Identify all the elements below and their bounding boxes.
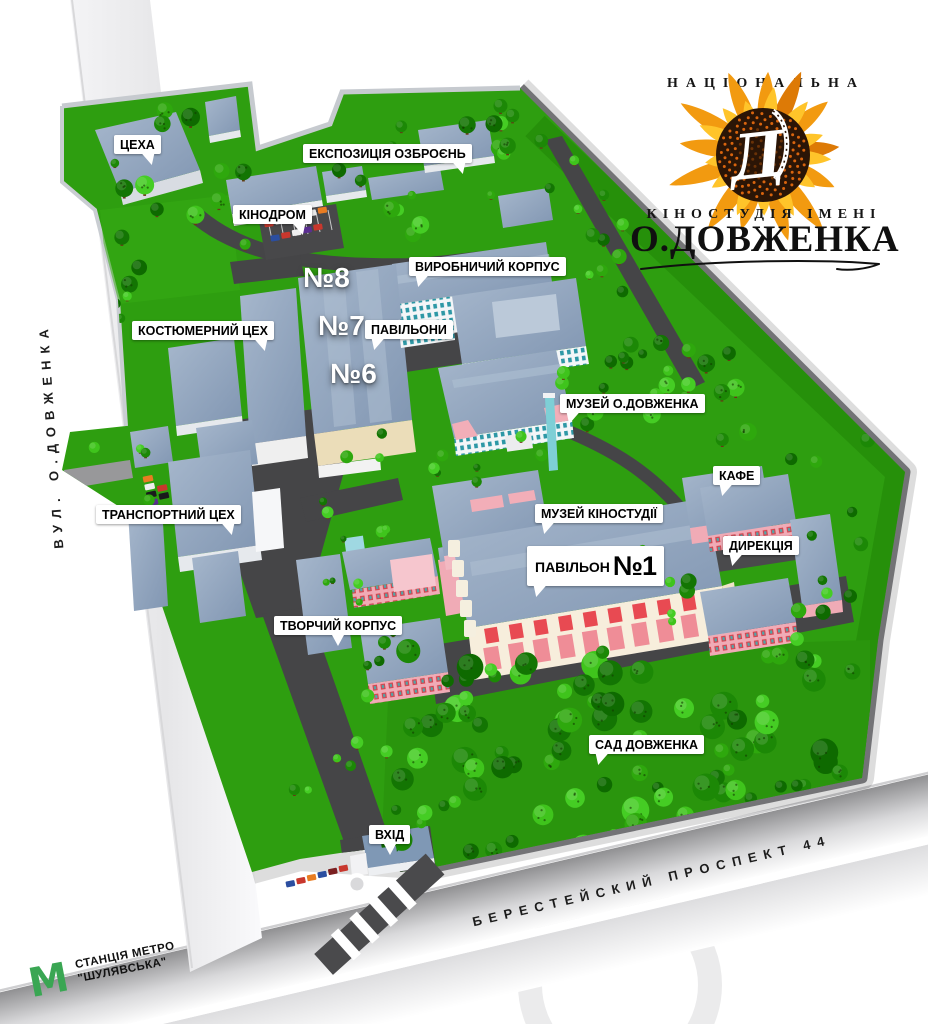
- label-vkhid: ВХІД: [369, 825, 410, 844]
- label-muzei-dovzhenka: МУЗЕЙ О.ДОВЖЕНКА: [560, 394, 705, 413]
- label-pavilion-1: ПАВІЛЬОН№1: [527, 546, 664, 586]
- label-pavilion-8: №8: [303, 262, 350, 294]
- label-pavilion-6: №6: [330, 358, 377, 390]
- svg-text:Д: Д: [723, 117, 790, 196]
- logo-name-line: О.ДОВЖЕНКА: [630, 221, 890, 258]
- label-sad-dovzhenka: САД ДОВЖЕНКА: [589, 735, 704, 754]
- label-kinodrom: КІНОДРОМ: [233, 205, 312, 224]
- label-dyrektsiia: ДИРЕКЦІЯ: [723, 536, 799, 555]
- label-transportnyi: ТРАНСПОРТНИЙ ЦЕХ: [96, 505, 241, 524]
- logo-monogram: Д: [723, 111, 790, 196]
- dovzhenko-film-studio-map: ЦЕХА ЕКСПОЗИЦІЯ ОЗБРОЄНЬ КІНОДРОМ ВИРОБН…: [0, 0, 928, 1024]
- logo-swash: [635, 257, 885, 273]
- studio-logo: НАЦІОНАЛЬНА Д КІНОСТУДІЯ ІМЕНІ О.ДОВЖЕНК…: [630, 58, 890, 273]
- label-vyrobnychyi: ВИРОБНИЧИЙ КОРПУС: [409, 257, 566, 276]
- label-pavilony: ПАВІЛЬОНИ: [365, 320, 453, 339]
- label-kafe: КАФЕ: [713, 466, 760, 485]
- label-expo-ozbroen: ЕКСПОЗИЦІЯ ОЗБРОЄНЬ: [303, 144, 472, 163]
- label-tsekha: ЦЕХА: [114, 135, 161, 154]
- label-tvorchyi: ТВОРЧИЙ КОРПУС: [274, 616, 402, 635]
- label-muzei-kinostudii: МУЗЕЙ КІНОСТУДІЇ: [535, 504, 663, 523]
- metro-m-logo: М: [22, 954, 75, 1004]
- svg-text:М: М: [25, 954, 73, 1003]
- label-kostiumernyi: КОСТЮМЕРНИЙ ЦЕХ: [132, 321, 274, 340]
- label-pavilion-7: №7: [318, 310, 365, 342]
